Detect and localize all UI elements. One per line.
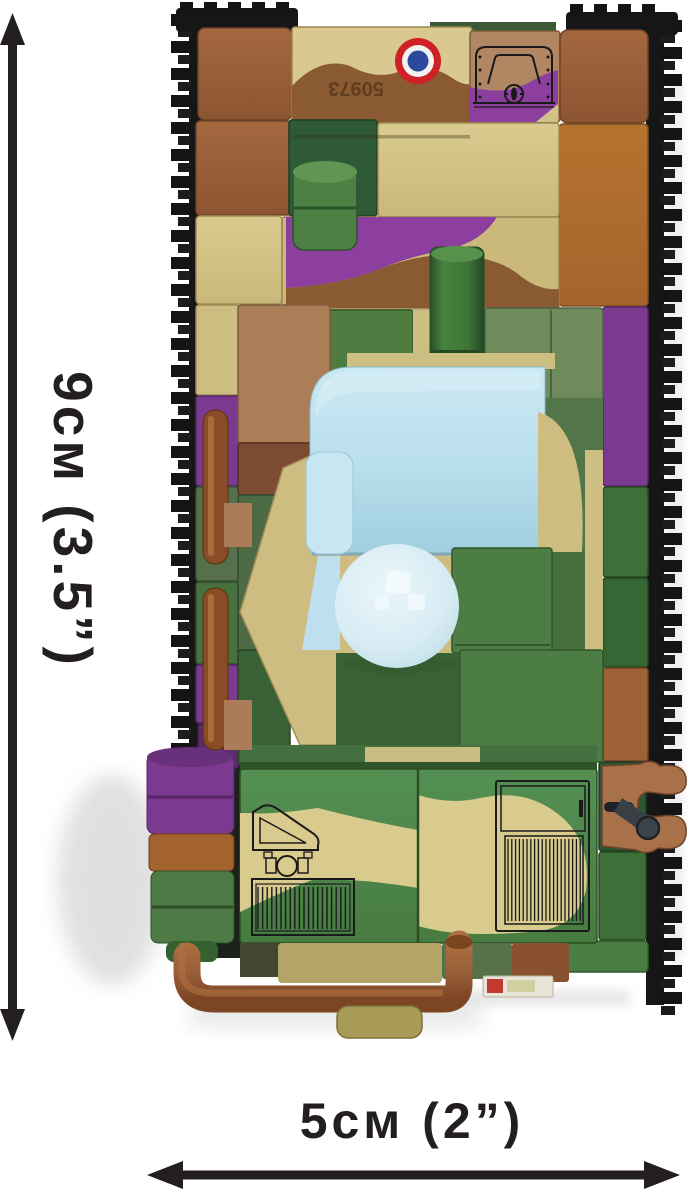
svg-text:50973: 50973: [328, 77, 384, 99]
svg-text:9см (3.5”): 9см (3.5”): [42, 371, 104, 669]
svg-text:5см (2”): 5см (2”): [300, 1093, 525, 1149]
